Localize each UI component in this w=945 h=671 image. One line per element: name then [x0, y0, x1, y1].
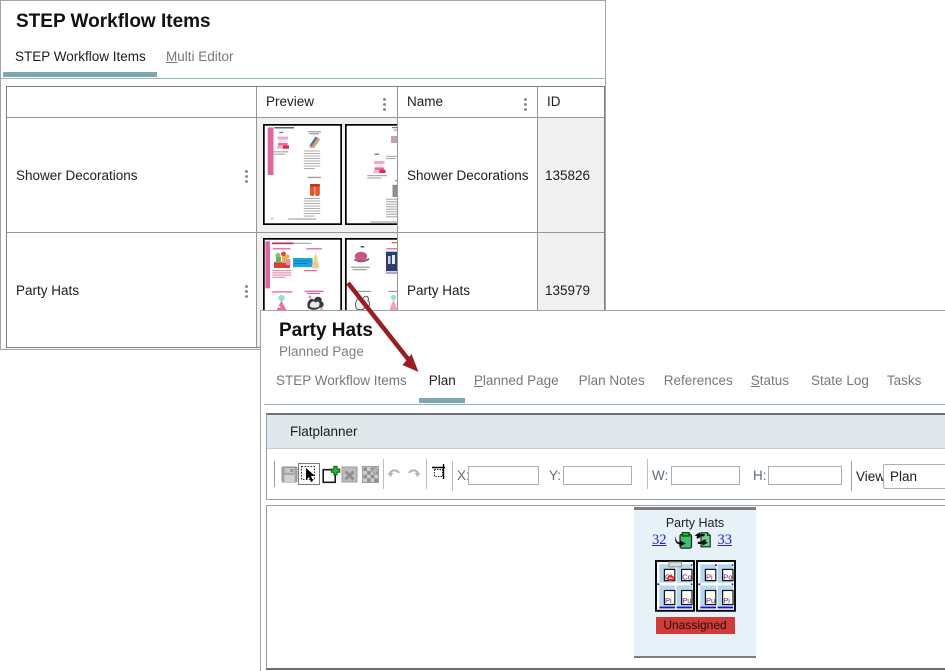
- svg-text:Pi: Pi: [706, 572, 713, 581]
- svg-text:Pu: Pu: [682, 596, 691, 605]
- svg-text:Pu: Pu: [706, 596, 715, 605]
- svg-text:Co: Co: [682, 572, 692, 581]
- svg-text:Pi: Pi: [665, 596, 672, 605]
- svg-text:Pi: Pi: [723, 596, 730, 605]
- svg-text:Po: Po: [723, 572, 732, 581]
